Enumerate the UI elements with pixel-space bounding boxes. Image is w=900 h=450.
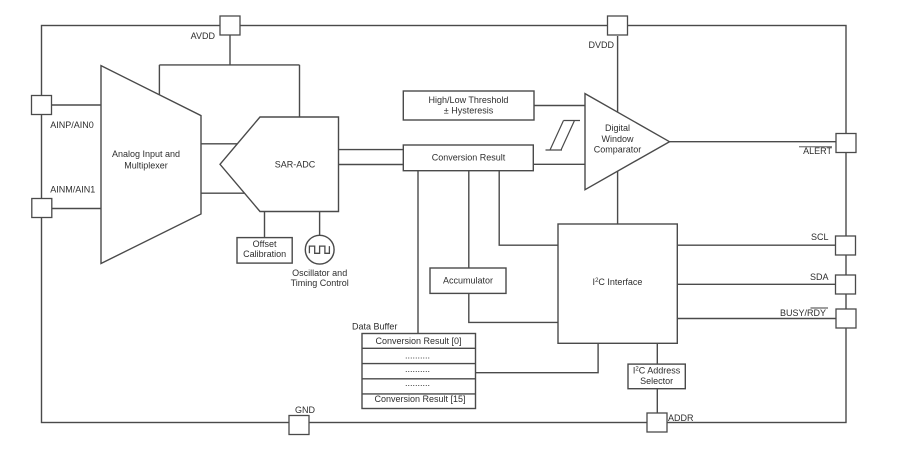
svg-text:Conversion Result [15]: Conversion Result [15] — [374, 394, 465, 404]
svg-text:DVDD: DVDD — [588, 40, 614, 50]
svg-text:Calibration: Calibration — [243, 249, 286, 259]
svg-text:ADDR: ADDR — [668, 413, 694, 423]
svg-text:SDA: SDA — [810, 272, 829, 282]
svg-text:Conversion Result: Conversion Result — [432, 153, 506, 163]
svg-text:ALERT: ALERT — [803, 146, 832, 156]
svg-text:Offset: Offset — [253, 239, 277, 249]
svg-text:..........: .......... — [405, 378, 430, 388]
svg-text:AINM/AIN1: AINM/AIN1 — [50, 184, 95, 194]
svg-text:Analog Input and: Analog Input and — [112, 149, 180, 159]
svg-text:High/Low Threshold: High/Low Threshold — [429, 95, 509, 105]
svg-text:Selector: Selector — [640, 376, 673, 386]
svg-text:AVDD: AVDD — [191, 31, 216, 41]
svg-text:GND: GND — [295, 405, 316, 415]
svg-text:AINP/AIN0: AINP/AIN0 — [50, 120, 94, 130]
svg-text:BUSY/RDY: BUSY/RDY — [780, 308, 826, 318]
svg-text:Multiplexer: Multiplexer — [124, 160, 168, 170]
svg-text:Digital: Digital — [605, 123, 630, 133]
svg-text:Conversion Result [0]: Conversion Result [0] — [375, 336, 461, 346]
svg-text:Data Buffer: Data Buffer — [352, 321, 397, 331]
svg-text:I2C Address: I2C Address — [633, 366, 681, 376]
svg-text:..........: .......... — [405, 351, 430, 361]
svg-text:SCL: SCL — [811, 232, 829, 242]
svg-text:Accumulator: Accumulator — [443, 276, 493, 286]
svg-text:..........: .......... — [405, 364, 430, 374]
svg-text:Comparator: Comparator — [594, 145, 642, 155]
svg-text:I2C Interface: I2C Interface — [593, 277, 643, 287]
svg-text:SAR-ADC: SAR-ADC — [275, 160, 316, 170]
svg-text:Window: Window — [601, 134, 634, 144]
svg-text:± Hysteresis: ± Hysteresis — [444, 105, 494, 115]
svg-text:Oscillator and: Oscillator and — [292, 268, 347, 278]
svg-text:Timing Control: Timing Control — [291, 278, 349, 288]
